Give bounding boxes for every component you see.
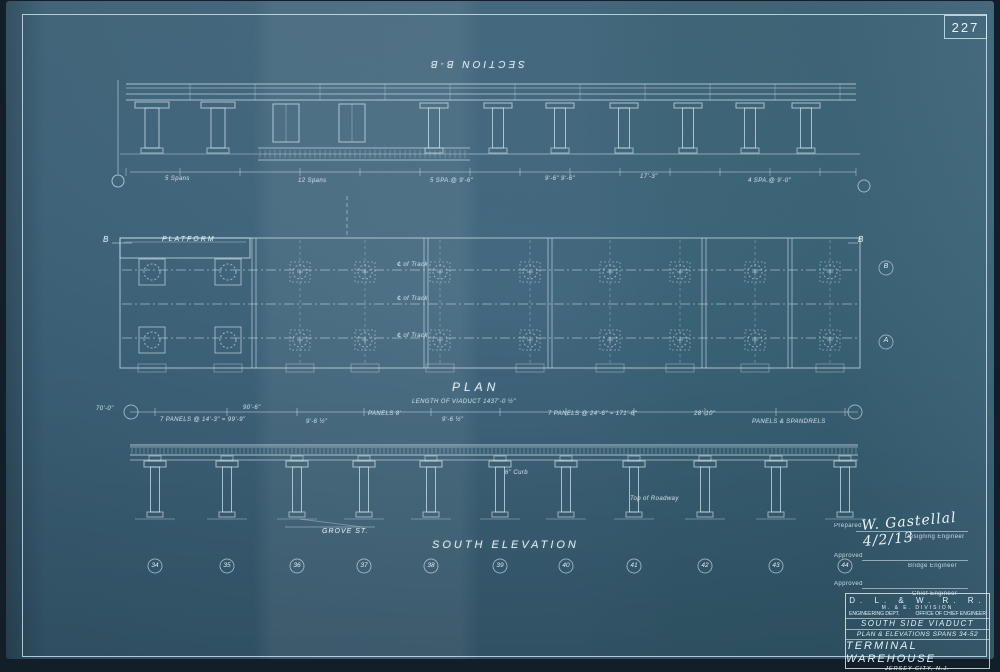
approved-line-1	[862, 560, 968, 561]
approved-label-2: Approved	[834, 581, 863, 587]
bent-number: 34	[148, 562, 162, 569]
track-centerline-label: ℄ of Track	[397, 295, 428, 302]
approved-line-2	[862, 588, 968, 589]
track-centerline-label: ℄ of Track	[397, 261, 428, 268]
bent-number: 39	[493, 562, 507, 569]
location: JERSEY CITY, N.J.	[885, 666, 950, 672]
margin-marker: B	[879, 263, 893, 270]
grove-st-label: GROVE ST.	[322, 528, 368, 535]
elevation-dim-label: 9'-6 ½"	[306, 419, 327, 425]
b-marker-left: B	[103, 235, 109, 244]
drawing-subtitle: PLAN & ELEVATIONS SPANS 34-52	[846, 629, 989, 639]
project-name: SOUTH SIDE VIADUCT	[846, 618, 989, 629]
curb-note: 6" Curb	[505, 470, 528, 476]
elevation-dim-label: PANELS 8'	[368, 411, 401, 417]
bent-number: 44	[838, 562, 852, 569]
elevation-dim-label: 9'-6 ½"	[442, 417, 463, 423]
section-dim-label: 17'-3"	[640, 174, 658, 180]
bent-number: 35	[220, 562, 234, 569]
elevation-dim-label: PANELS & SPANDRELS	[752, 419, 826, 425]
roadway-note: Top of Roadway	[630, 496, 679, 502]
bent-number: 37	[357, 562, 371, 569]
dept-left: ENGINEERING DEPT.	[849, 611, 900, 617]
elevation-title: SOUTH ELEVATION	[432, 539, 579, 551]
dept-right: OFFICE OF CHIEF ENGINEER	[915, 611, 986, 617]
signature-line	[856, 531, 968, 532]
section-dim-label: 4 SPA.@ 9'-0"	[748, 178, 791, 184]
approved-label-1: Approved	[834, 553, 863, 559]
margin-marker: A	[879, 337, 893, 344]
platform-label: PLATFORM	[162, 236, 216, 243]
bent-number: 41	[627, 562, 641, 569]
bent-number: 36	[290, 562, 304, 569]
track-centerline-label: ℄ of Track	[397, 332, 428, 339]
bent-number: 43	[769, 562, 783, 569]
sheet-number-top: 227	[952, 20, 980, 35]
b-marker-right: B	[858, 235, 864, 244]
section-dim-label: 5 SPA.@ 9'-6"	[430, 178, 473, 184]
sheet-number-corner: 227	[944, 15, 987, 39]
section-dim-label: 12 Spans	[298, 178, 327, 184]
bent-number: 38	[424, 562, 438, 569]
plan-title: PLAN	[452, 380, 499, 394]
section-title: SECTION B-B	[428, 58, 525, 69]
elevation-dim-label: 7 PANELS @ 24'-6" = 171'-6"	[548, 411, 637, 417]
section-dim-label: 5 Spans	[165, 176, 190, 182]
bent-number: 40	[559, 562, 573, 569]
elevation-dim-label: 28'-10"	[694, 411, 715, 417]
elevation-dim-label: 90'-6"	[243, 405, 261, 411]
section-dim-label: 9'-6" 9'-6"	[545, 176, 575, 182]
role-bridge-engineer: Bridge Engineer	[908, 563, 957, 569]
plan-subtitle: LENGTH OF VIADUCT 1437'-0 ½"	[412, 399, 516, 405]
role-designing-engineer: Designing Engineer	[905, 534, 965, 540]
elevation-dim-label: 7 PANELS @ 14'-3" = 99'-9"	[160, 417, 245, 423]
bent-number: 42	[698, 562, 712, 569]
sheet-border	[22, 14, 987, 657]
railroad-name: D. L. & W. R. R.	[849, 595, 985, 605]
elevation-dim-label: 70'-0"	[96, 406, 114, 412]
prepared-label: Prepared	[834, 523, 862, 529]
drawing-title: TERMINAL WAREHOUSE	[846, 640, 989, 666]
title-block: D. L. & W. R. R. M. & E. DIVISION ENGINE…	[845, 593, 990, 669]
blueprint-canvas: 227 SECTION B-B PLATFORM B B PLAN LENGTH…	[0, 0, 1000, 672]
